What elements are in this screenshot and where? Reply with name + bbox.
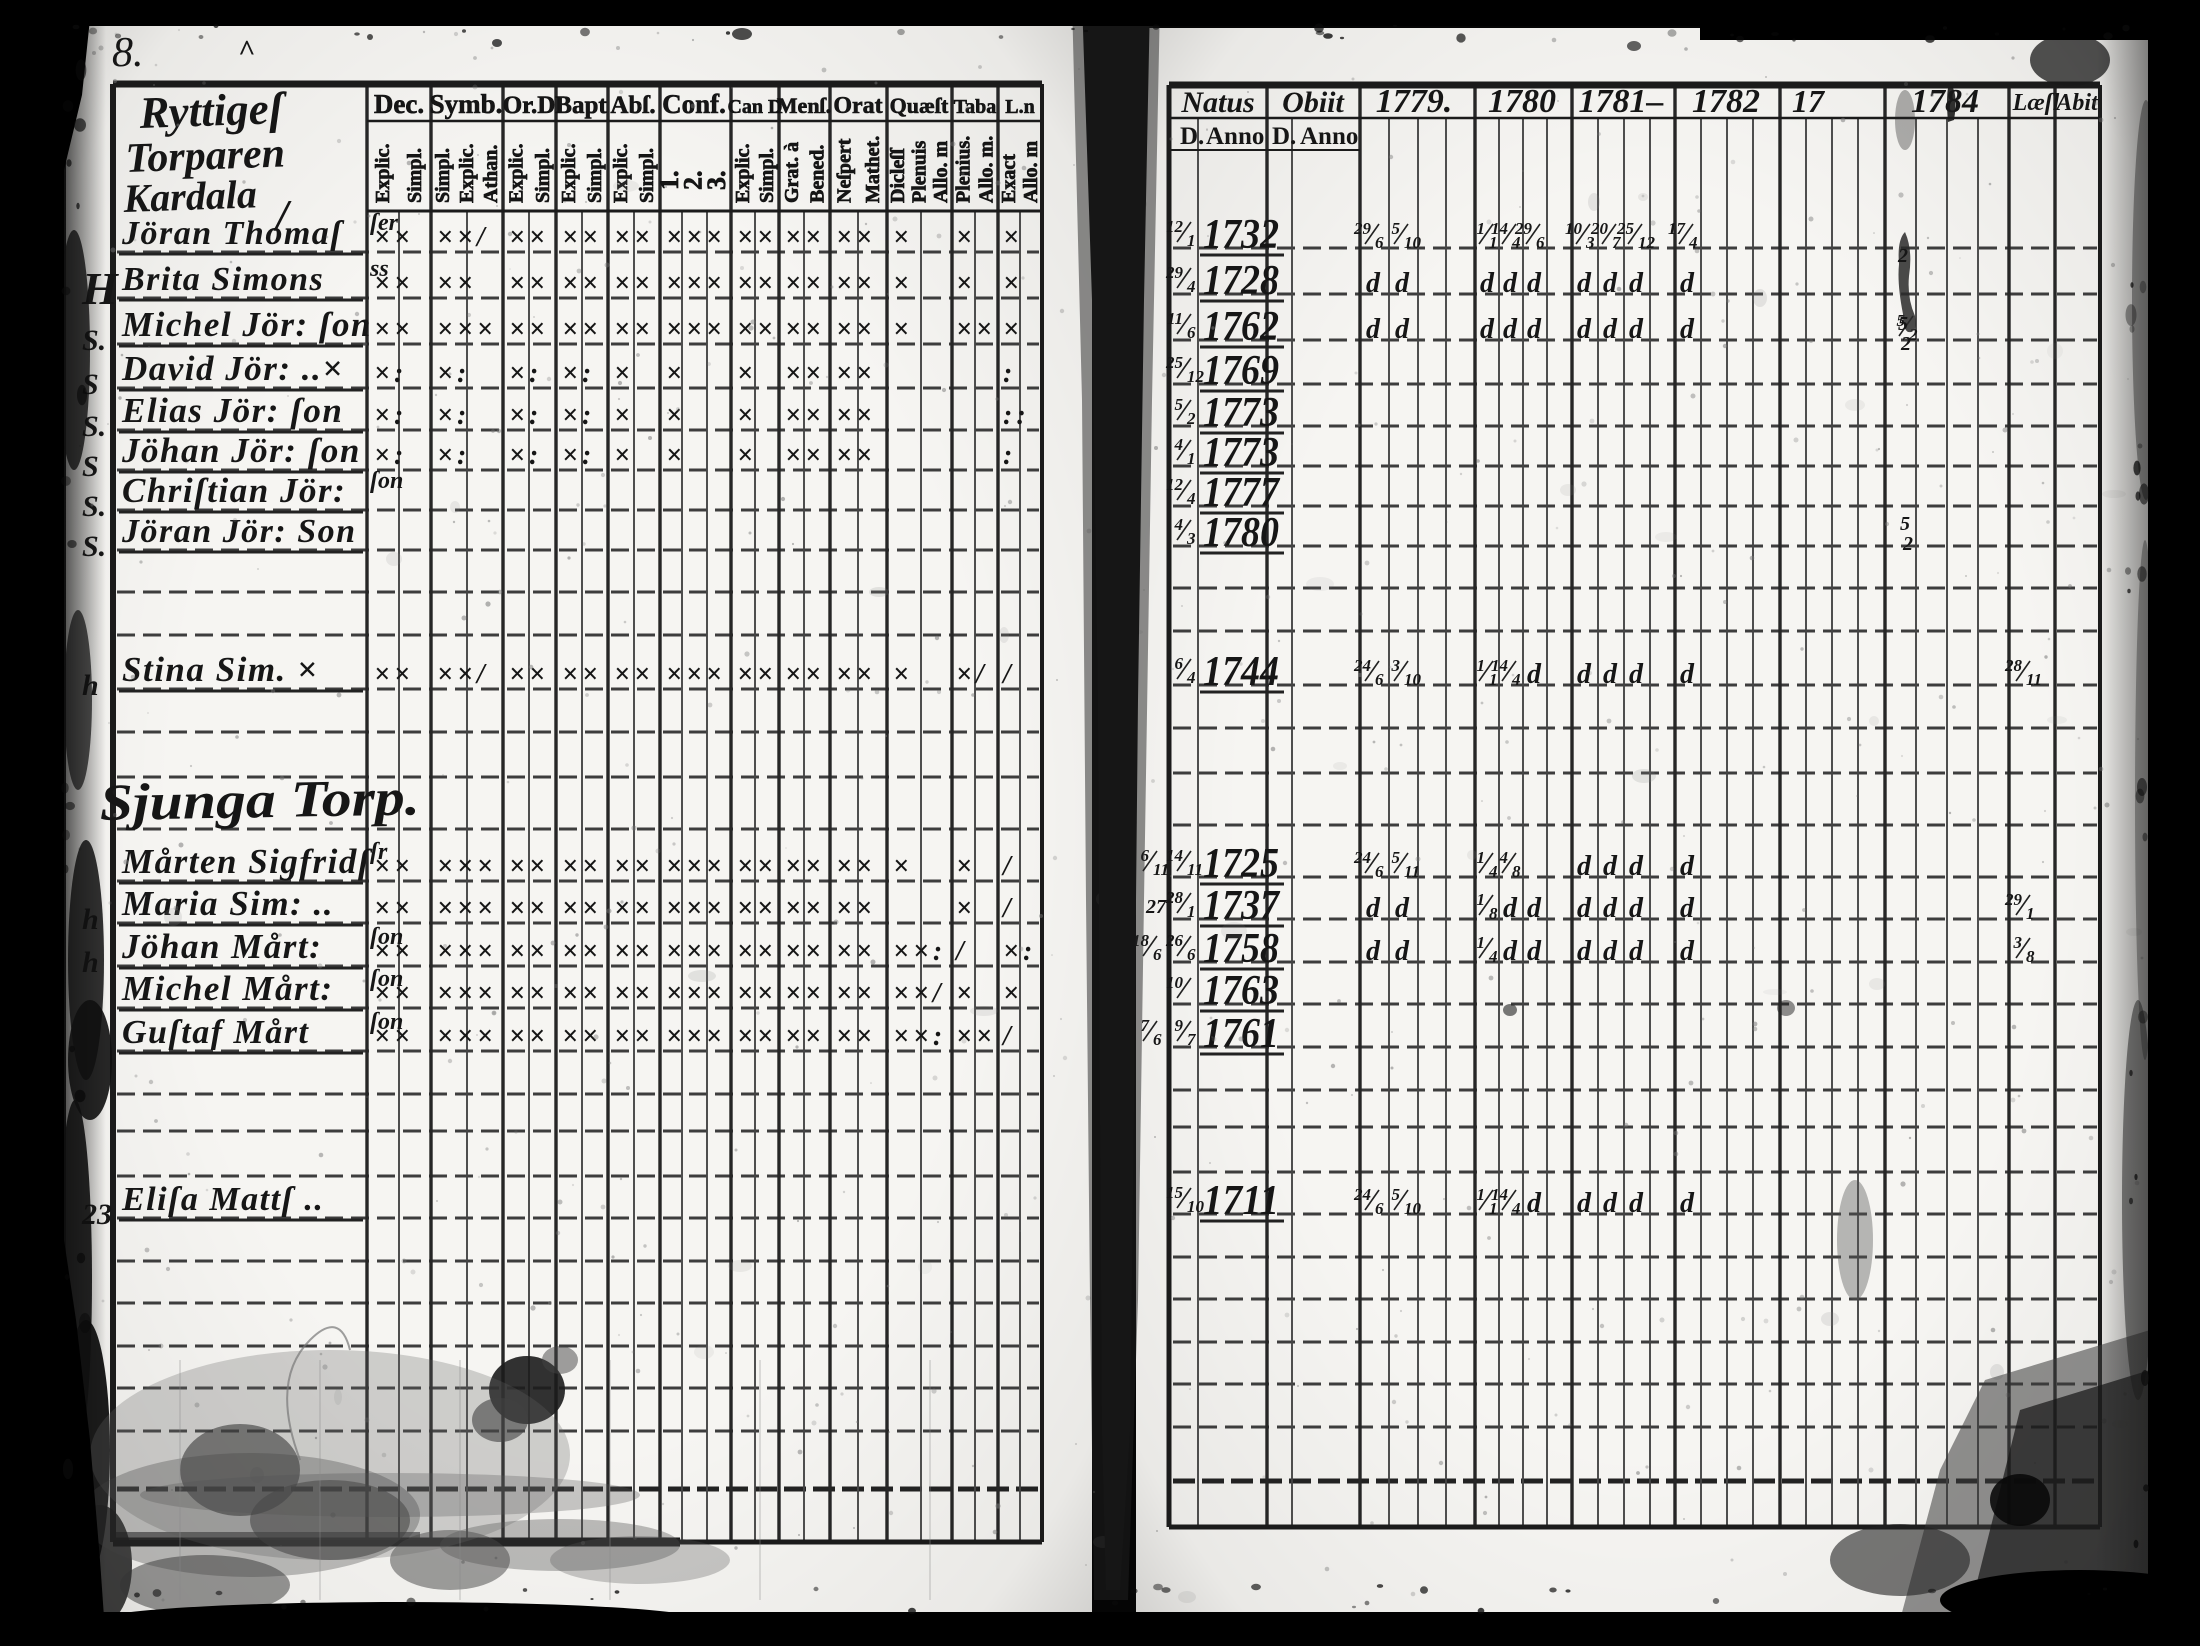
svg-text:××: ××: [509, 268, 549, 299]
svg-text:×: ×: [956, 851, 976, 882]
svg-text:×××: ×××: [666, 314, 726, 345]
svg-text:××: ××: [737, 222, 777, 253]
svg-text:d: d: [1680, 936, 1695, 967]
svg-text:××: ××: [509, 314, 549, 345]
svg-text:1: 1: [1477, 656, 1486, 675]
svg-text:17: 17: [1668, 219, 1687, 238]
svg-text:Athan.: Athan.: [480, 145, 502, 203]
svg-text:1732: 1732: [1203, 212, 1279, 258]
svg-text:Jöhan Jör: ſon: Jöhan Jör: ſon: [121, 431, 361, 470]
svg-text:×:: ×:: [509, 358, 542, 389]
svg-text:6: 6: [1375, 1199, 1384, 1218]
svg-text:××: ××: [509, 1021, 549, 1052]
svg-text:Anno: Anno: [1300, 123, 1358, 150]
svg-text:××:: ××:: [893, 1021, 946, 1052]
svg-text:1779.: 1779.: [1376, 83, 1453, 120]
svg-text:××: ××: [785, 440, 825, 471]
svg-text:d: d: [1480, 314, 1495, 345]
svg-text:2: 2: [1186, 409, 1196, 428]
svg-text:5: 5: [1898, 313, 1908, 335]
svg-text:6: 6: [1536, 233, 1545, 252]
svg-text:2: 2: [1897, 245, 1908, 267]
svg-text:Orat: Orat: [833, 93, 882, 119]
svg-text:××: ××: [374, 268, 414, 299]
svg-text:4: 4: [1186, 489, 1196, 508]
svg-text:××: ××: [374, 978, 414, 1009]
svg-text:×:: ×:: [374, 358, 407, 389]
svg-text:×/: ×/: [956, 659, 988, 690]
svg-text:×: ×: [666, 400, 686, 431]
svg-text:Simpl.: Simpl.: [432, 148, 454, 203]
svg-text:××: ××: [836, 314, 876, 345]
svg-text:×: ×: [956, 978, 976, 1009]
svg-text:××: ××: [836, 978, 876, 1009]
svg-text:17: 17: [1792, 83, 1826, 119]
svg-text:Simpl.: Simpl.: [584, 148, 606, 203]
svg-text:1: 1: [1477, 848, 1486, 867]
svg-text:14: 14: [1491, 1185, 1508, 1204]
svg-text:×: ×: [737, 440, 757, 471]
svg-text:11: 11: [2026, 670, 2042, 689]
svg-text:10: 10: [1404, 670, 1422, 689]
svg-text:d: d: [1395, 936, 1410, 967]
svg-text:d: d: [1577, 268, 1592, 299]
svg-text:d: d: [1503, 314, 1518, 345]
svg-text:1: 1: [1477, 890, 1486, 909]
svg-text:Quæſt: Quæſt: [890, 93, 949, 118]
svg-text:L.n: L.n: [1005, 96, 1034, 118]
svg-text:25: 25: [1165, 353, 1184, 372]
svg-text:12: 12: [1187, 367, 1205, 386]
svg-text:××: ××: [836, 440, 876, 471]
svg-text:×: ×: [1003, 978, 1023, 1009]
svg-text:d: d: [1629, 893, 1644, 924]
svg-text:Elias Jör: ſon: Elias Jör: ſon: [121, 391, 343, 430]
svg-text:××: ××: [737, 978, 777, 1009]
svg-text:××: ××: [614, 268, 654, 299]
svg-text:××: ××: [374, 659, 414, 690]
svg-text:/: /: [1001, 1021, 1015, 1052]
svg-text:Stina Sim. ×: Stina Sim. ×: [122, 650, 319, 689]
svg-text:×××: ×××: [666, 936, 726, 967]
svg-text::: :: [1003, 440, 1016, 471]
svg-text:××: ××: [374, 222, 414, 253]
svg-text:××: ××: [614, 936, 654, 967]
svg-text:Mathet.: Mathet.: [862, 136, 884, 203]
svg-text:David Jör: ..×: David Jör: ..×: [121, 349, 344, 388]
svg-text:×××: ×××: [437, 314, 497, 345]
svg-text:×:: ×:: [437, 440, 470, 471]
svg-text:1: 1: [1187, 231, 1196, 250]
svg-text:d: d: [1629, 1188, 1644, 1219]
svg-text:Natus: Natus: [1180, 86, 1254, 119]
svg-text:××: ××: [737, 1021, 777, 1052]
svg-text:4: 4: [1511, 1199, 1521, 1218]
svg-text:d: d: [1395, 314, 1410, 345]
svg-text:5: 5: [1392, 219, 1401, 238]
svg-text:Or.D: Or.D: [503, 92, 556, 119]
svg-text:6: 6: [1153, 945, 1162, 964]
svg-text:11: 11: [1187, 860, 1203, 879]
svg-text:×:: ×:: [562, 440, 595, 471]
svg-text:6: 6: [1375, 233, 1384, 252]
svg-text:××: ××: [614, 893, 654, 924]
svg-text:14: 14: [1491, 219, 1508, 238]
svg-text:d: d: [1366, 314, 1381, 345]
svg-text:d: d: [1603, 936, 1618, 967]
svg-text:Abſ.: Abſ.: [610, 92, 655, 119]
svg-text:^: ^: [238, 34, 255, 67]
svg-text:6: 6: [1375, 670, 1384, 689]
svg-text:10: 10: [1404, 1199, 1422, 1218]
svg-text:28: 28: [1165, 888, 1184, 907]
svg-text:××: ××: [614, 851, 654, 882]
svg-text:10: 10: [1166, 973, 1184, 992]
svg-text:d: d: [1366, 893, 1381, 924]
svg-text:4: 4: [1499, 848, 1509, 867]
svg-text:1761: 1761: [1203, 1011, 1279, 1057]
svg-text:××: ××: [836, 268, 876, 299]
svg-text:Explic.: Explic.: [456, 144, 478, 203]
svg-text:××/: ××/: [893, 978, 945, 1009]
svg-text:1: 1: [2026, 904, 2035, 923]
svg-text:1744: 1744: [1203, 649, 1279, 695]
svg-text:×: ×: [666, 440, 686, 471]
svg-text:4: 4: [1174, 435, 1184, 454]
svg-text:Mårten Sigfridſ: Mårten Sigfridſ: [121, 842, 373, 881]
svg-text:××: ××: [785, 659, 825, 690]
svg-text:××: ××: [562, 851, 602, 882]
svg-text:Explic.: Explic.: [732, 144, 754, 203]
svg-text:d: d: [1577, 936, 1592, 967]
svg-text:Allo. m.: Allo. m.: [976, 136, 998, 203]
svg-text:××: ××: [737, 659, 777, 690]
svg-text:Anno: Anno: [1206, 123, 1264, 150]
svg-text:Chriſtian Jör:: Chriſtian Jör:: [122, 471, 346, 510]
svg-text:4: 4: [1488, 947, 1498, 966]
svg-text:d: d: [1503, 268, 1518, 299]
svg-text:/: /: [1001, 659, 1015, 690]
svg-text:Menſ.: Menſ.: [777, 93, 831, 118]
svg-text:9: 9: [1175, 1016, 1184, 1035]
svg-text:××: ××: [437, 268, 477, 299]
svg-text:1725: 1725: [1203, 841, 1279, 887]
svg-text:d: d: [1366, 268, 1381, 299]
svg-text:×××: ×××: [437, 936, 497, 967]
svg-text:20: 20: [1590, 219, 1609, 238]
svg-text:1784: 1784: [1911, 83, 1979, 120]
svg-text:d: d: [1603, 1188, 1618, 1219]
svg-text:Michel Jör: ſon: Michel Jör: ſon: [121, 305, 372, 344]
svg-text:24: 24: [1353, 848, 1371, 867]
svg-text:d: d: [1603, 314, 1618, 345]
svg-text:6: 6: [1187, 945, 1196, 964]
svg-text:Kardala: Kardala: [122, 171, 258, 221]
svg-text:××: ××: [509, 851, 549, 882]
svg-text:×××: ×××: [437, 1021, 497, 1052]
svg-text:29: 29: [1165, 263, 1184, 282]
svg-text:×××: ×××: [666, 268, 726, 299]
svg-text:Bened.: Bened.: [806, 145, 828, 203]
svg-text:1: 1: [1477, 219, 1486, 238]
svg-text:10: 10: [1187, 1197, 1205, 1216]
svg-text:××: ××: [737, 314, 777, 345]
svg-text:××: ××: [737, 936, 777, 967]
svg-text:Taba: Taba: [954, 96, 997, 118]
svg-text:11: 11: [1404, 862, 1420, 881]
svg-text:Abit: Abit: [2054, 90, 2099, 116]
svg-text:×: ×: [893, 222, 913, 253]
svg-text:Grat. à: Grat. à: [781, 142, 803, 203]
svg-text:5: 5: [1900, 513, 1910, 535]
svg-text:×: ×: [1003, 222, 1023, 253]
svg-text:×××: ×××: [666, 659, 726, 690]
svg-text:10: 10: [1565, 219, 1583, 238]
svg-text:1: 1: [1187, 449, 1196, 468]
svg-text:d: d: [1629, 314, 1644, 345]
svg-text:××: ××: [785, 268, 825, 299]
svg-text:d: d: [1680, 268, 1695, 299]
svg-text:d: d: [1527, 893, 1542, 924]
svg-text:d: d: [1603, 659, 1618, 690]
svg-text:d: d: [1480, 268, 1495, 299]
svg-text:Simpl.: Simpl.: [404, 148, 426, 203]
svg-text:Can D: Can D: [727, 96, 782, 118]
svg-text:1737: 1737: [1203, 883, 1281, 929]
svg-text:××: ××: [956, 314, 996, 345]
svg-text:4: 4: [1174, 515, 1184, 534]
svg-text:d: d: [1527, 1188, 1542, 1219]
svg-text:××: ××: [785, 1021, 825, 1052]
svg-text:×××: ×××: [437, 893, 497, 924]
svg-text:1: 1: [1477, 933, 1486, 952]
svg-text:××: ××: [614, 978, 654, 1009]
svg-text:::: ::: [1003, 400, 1030, 431]
svg-text:×:: ×:: [562, 400, 595, 431]
svg-text:××/: ××/: [437, 659, 489, 690]
svg-text:××: ××: [509, 978, 549, 1009]
svg-text:/: /: [1001, 851, 1015, 882]
svg-text:d: d: [1603, 268, 1618, 299]
svg-text:d: d: [1577, 851, 1592, 882]
svg-text:×: ×: [956, 222, 976, 253]
svg-text:d: d: [1503, 936, 1518, 967]
svg-text:Brita Simons: Brita Simons: [121, 261, 324, 298]
svg-text:××: ××: [836, 1021, 876, 1052]
svg-text:Explic.: Explic.: [372, 144, 394, 203]
svg-text:5: 5: [1175, 395, 1184, 414]
svg-text:4: 4: [1186, 668, 1196, 687]
svg-text:4: 4: [1186, 277, 1196, 296]
svg-text:Sjunga Torp.: Sjunga Torp.: [99, 769, 420, 832]
svg-text:12: 12: [1166, 475, 1184, 494]
svg-text:×:: ×:: [374, 440, 407, 471]
svg-text:××: ××: [562, 314, 602, 345]
svg-text:3: 3: [1391, 656, 1401, 675]
svg-text:×: ×: [614, 358, 634, 389]
svg-text:××: ××: [836, 358, 876, 389]
svg-text:×:: ×:: [509, 440, 542, 471]
svg-text:1728: 1728: [1203, 258, 1279, 304]
svg-text:1769: 1769: [1203, 348, 1279, 394]
svg-text:d: d: [1680, 314, 1695, 345]
svg-text:××: ××: [614, 314, 654, 345]
svg-text:××: ××: [562, 222, 602, 253]
svg-text:××: ××: [562, 893, 602, 924]
svg-text:d: d: [1603, 893, 1618, 924]
svg-text:×:: ×:: [1003, 936, 1036, 967]
svg-text:×: ×: [956, 268, 976, 299]
svg-text:××: ××: [956, 1021, 996, 1052]
svg-text:1763: 1763: [1203, 968, 1279, 1014]
svg-text:×: ×: [737, 400, 757, 431]
svg-text:1: 1: [1187, 902, 1196, 921]
svg-text:××: ××: [785, 400, 825, 431]
svg-text:××: ××: [614, 222, 654, 253]
svg-text:Bapt: Bapt: [555, 92, 607, 119]
svg-text:Obiit: Obiit: [1282, 86, 1345, 119]
svg-text:5: 5: [1392, 1185, 1401, 1204]
svg-text:××: ××: [737, 893, 777, 924]
svg-text:×: ×: [956, 893, 976, 924]
svg-text:×: ×: [1003, 314, 1023, 345]
svg-text:28: 28: [2004, 656, 2023, 675]
svg-text:××: ××: [562, 268, 602, 299]
svg-text:12: 12: [1638, 233, 1656, 252]
svg-text:××: ××: [374, 936, 414, 967]
svg-text:25: 25: [1616, 219, 1635, 238]
svg-text:d: d: [1527, 268, 1542, 299]
svg-text:ſon: ſon: [370, 468, 403, 494]
svg-text:×:: ×:: [437, 400, 470, 431]
svg-text:d: d: [1629, 936, 1644, 967]
svg-text:Plenius.: Plenius.: [953, 136, 975, 203]
svg-text:8: 8: [1512, 862, 1521, 881]
svg-text:3.: 3.: [702, 171, 731, 191]
svg-text:1762: 1762: [1203, 304, 1279, 350]
svg-text:××: ××: [836, 893, 876, 924]
svg-text:××: ××: [737, 268, 777, 299]
svg-text:××: ××: [836, 851, 876, 882]
svg-text:Jöran Jör: Son: Jöran Jör: Son: [121, 513, 357, 550]
svg-text:Explic.: Explic.: [610, 144, 632, 203]
svg-text:11: 11: [1167, 309, 1183, 328]
svg-text:×:: ×:: [562, 358, 595, 389]
svg-text:Explic.: Explic.: [558, 144, 580, 203]
svg-text:1711: 1711: [1203, 1178, 1279, 1224]
svg-text:×:: ×:: [437, 358, 470, 389]
svg-text:29: 29: [1514, 219, 1533, 238]
svg-text:15: 15: [1166, 1183, 1184, 1202]
svg-text:××: ××: [614, 659, 654, 690]
svg-text:××: ××: [836, 936, 876, 967]
svg-text:Læſl: Læſl: [2012, 90, 2060, 116]
svg-text:Michel Mårt:: Michel Mårt:: [121, 969, 333, 1008]
svg-text:d: d: [1680, 851, 1695, 882]
svg-text:d: d: [1577, 314, 1592, 345]
svg-text:Maria Sim: ..: Maria Sim: ..: [121, 884, 334, 923]
svg-text:10: 10: [1404, 233, 1422, 252]
svg-text:d: d: [1577, 893, 1592, 924]
svg-text:×××: ×××: [437, 978, 497, 1009]
svg-text:12: 12: [1166, 217, 1184, 236]
svg-text:××: ××: [509, 659, 549, 690]
svg-text:××: ××: [785, 358, 825, 389]
svg-text:11: 11: [1153, 860, 1169, 879]
svg-text:××: ××: [374, 851, 414, 882]
svg-text:Explic.: Explic.: [505, 144, 527, 203]
svg-text:Allo. m: Allo. m: [930, 140, 952, 203]
svg-text:d: d: [1503, 893, 1518, 924]
svg-text:/: /: [1001, 893, 1015, 924]
svg-text:24: 24: [1353, 1185, 1371, 1204]
svg-text:××: ××: [785, 222, 825, 253]
svg-text:2: 2: [1902, 533, 1913, 555]
svg-text:D.: D.: [1180, 123, 1204, 150]
svg-text:d: d: [1629, 851, 1644, 882]
svg-text:1780: 1780: [1203, 510, 1279, 556]
svg-text:××: ××: [562, 936, 602, 967]
svg-text:2: 2: [1900, 333, 1911, 355]
svg-text:6: 6: [1375, 862, 1384, 881]
svg-text:××: ××: [836, 659, 876, 690]
svg-text:×: ×: [1003, 268, 1023, 299]
svg-text:×: ×: [666, 358, 686, 389]
svg-text:Plenuis: Plenuis: [909, 141, 931, 203]
svg-text:×: ×: [614, 440, 634, 471]
svg-text:Jöran Thomaſ: Jöran Thomaſ: [121, 215, 345, 252]
svg-text:××: ××: [614, 1021, 654, 1052]
svg-text:××: ××: [836, 222, 876, 253]
svg-text:×: ×: [893, 659, 913, 690]
svg-text:Guſtaf Mårt: Guſtaf Mårt: [122, 1014, 310, 1051]
svg-text:3: 3: [2013, 933, 2023, 952]
svg-text:1781–: 1781–: [1579, 83, 1664, 120]
svg-text:××: ××: [785, 893, 825, 924]
svg-text:1780: 1780: [1488, 83, 1556, 120]
svg-text:8: 8: [1489, 904, 1498, 923]
svg-text:×: ×: [614, 400, 634, 431]
svg-text:24: 24: [1353, 656, 1371, 675]
svg-text:×: ×: [893, 314, 913, 345]
svg-text:××:: ××:: [893, 936, 946, 967]
svg-text:d: d: [1629, 659, 1644, 690]
svg-text:Allo. m: Allo. m: [1020, 140, 1042, 203]
svg-text:××: ××: [836, 400, 876, 431]
svg-text:d: d: [1603, 851, 1618, 882]
svg-text:8: 8: [2026, 947, 2035, 966]
svg-text:Simpl.: Simpl.: [532, 148, 554, 203]
svg-text:d: d: [1680, 659, 1695, 690]
svg-text:D.: D.: [1272, 123, 1296, 150]
svg-text:3: 3: [1186, 529, 1196, 548]
svg-text:27: 27: [1145, 896, 1167, 918]
svg-text:14: 14: [1491, 656, 1508, 675]
svg-text:××: ××: [785, 978, 825, 1009]
svg-text:×××: ×××: [437, 851, 497, 882]
svg-text:Ryttigeſ: Ryttigeſ: [138, 83, 289, 138]
svg-text:××/: ××/: [437, 222, 489, 253]
svg-text:×××: ×××: [666, 222, 726, 253]
svg-text:/: /: [954, 936, 968, 967]
svg-text:××: ××: [509, 936, 549, 967]
svg-text:Symb.: Symb.: [430, 89, 503, 119]
svg-text:6: 6: [1187, 323, 1196, 342]
svg-text:××: ××: [374, 314, 414, 345]
svg-text:1: 1: [1477, 1185, 1486, 1204]
svg-text:×: ×: [737, 358, 757, 389]
svg-text:d: d: [1629, 268, 1644, 299]
